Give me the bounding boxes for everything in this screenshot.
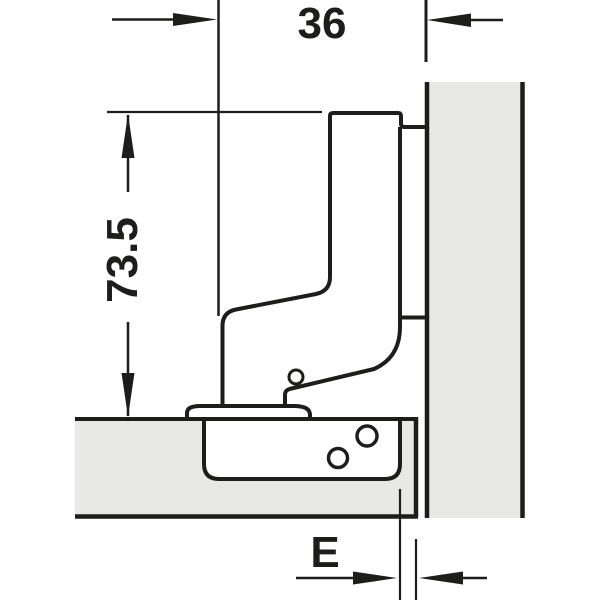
- cabinet-side-panel: [427, 82, 523, 518]
- door-panel: [75, 417, 418, 517]
- arrow-down-icon: [122, 373, 135, 417]
- dimension-label-left: 73.5: [98, 217, 147, 303]
- hinge-arm-outline: [223, 113, 427, 406]
- arrow-right-icon: [173, 13, 217, 26]
- dimension-left-height: 73.5: [98, 112, 322, 417]
- arrow-left-icon: [427, 14, 471, 28]
- cup-screw-hole-icon: [357, 426, 377, 446]
- hinge-arm-inner-edge: [285, 127, 400, 407]
- hinge-body: [187, 113, 426, 421]
- drawing-root: 36 73.5 E: [75, 0, 523, 600]
- arrow-up-icon: [122, 114, 135, 158]
- lever-screw-hole-icon: [289, 370, 303, 384]
- diagram-canvas: 36 73.5 E: [0, 0, 600, 600]
- dimension-label-edge: E: [310, 528, 339, 577]
- cup-screw-hole-icon: [329, 449, 348, 468]
- arrow-left-icon: [419, 572, 463, 585]
- arrow-right-icon: [353, 572, 397, 585]
- cabinet-side-panel-fill: [428, 82, 521, 518]
- hinge-mounting-diagram: 36 73.5 E: [0, 0, 600, 600]
- dimension-label-top: 36: [298, 0, 347, 48]
